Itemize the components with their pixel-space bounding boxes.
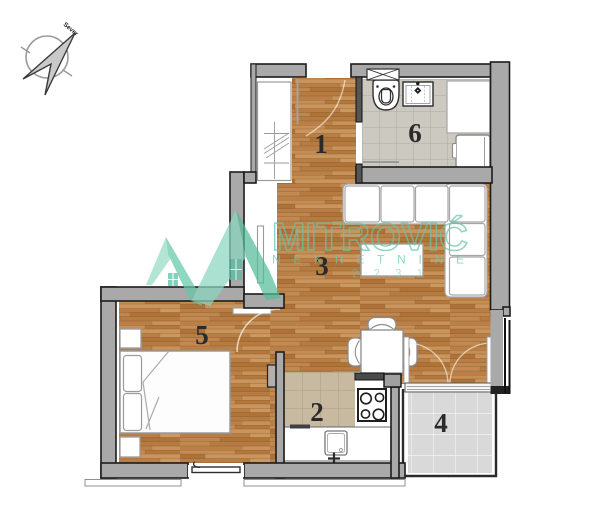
svg-text:5: 5 (195, 320, 209, 350)
svg-text:4: 4 (434, 408, 448, 438)
svg-text:6: 6 (408, 118, 422, 148)
svg-text:2: 2 (310, 397, 324, 427)
svg-text:1: 1 (314, 129, 328, 159)
